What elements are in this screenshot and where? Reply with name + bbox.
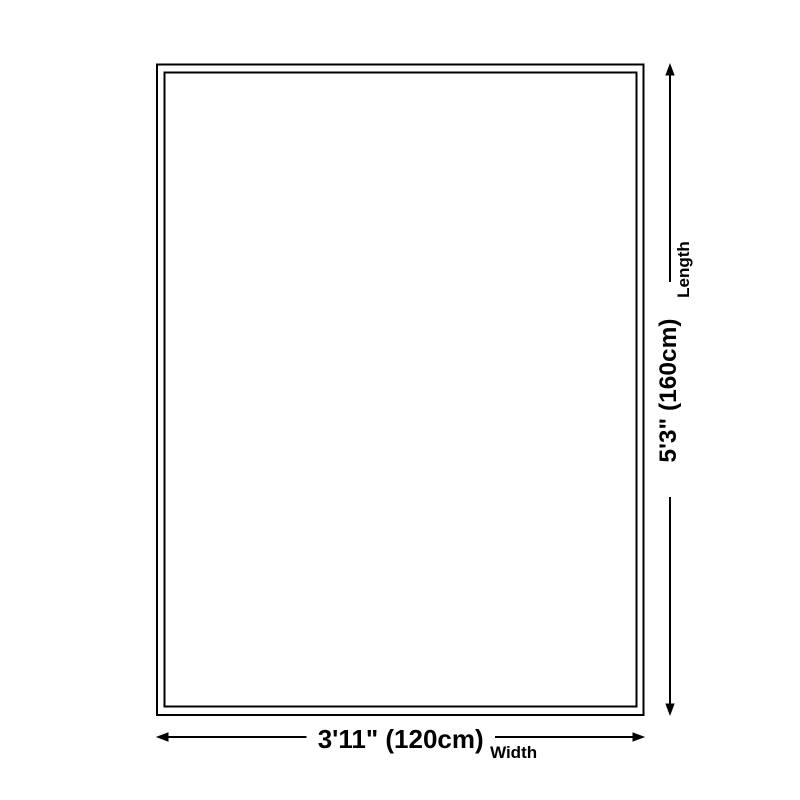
svg-text:Width: Width [490, 743, 537, 762]
svg-text:3'11" (120cm): 3'11" (120cm) [318, 724, 484, 754]
svg-text:5'3" (160cm): 5'3" (160cm) [655, 318, 682, 462]
svg-text:Length: Length [674, 241, 693, 298]
